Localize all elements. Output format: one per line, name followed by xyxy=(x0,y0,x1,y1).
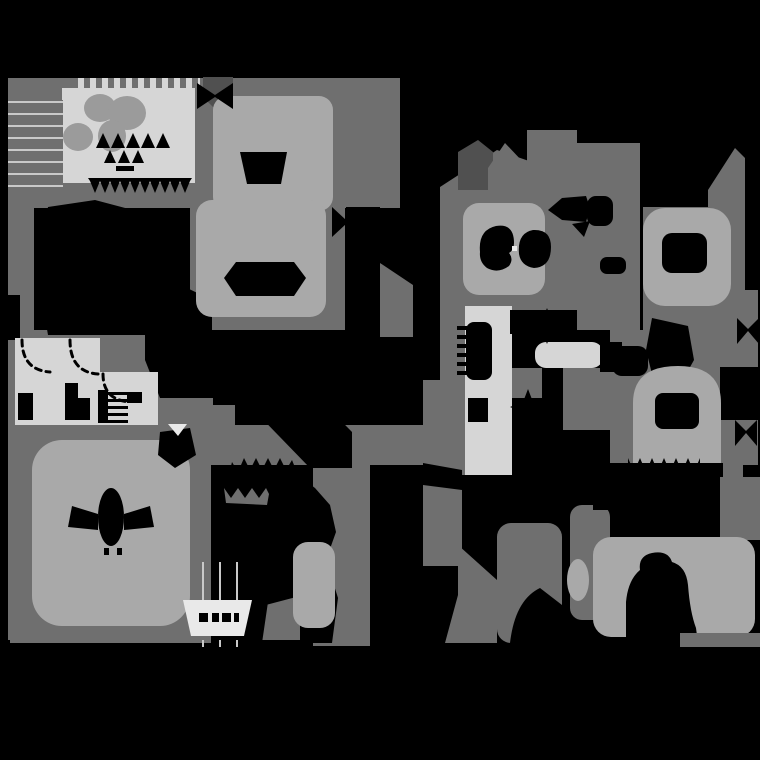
br-corner-patch xyxy=(720,477,760,540)
y-right-patch xyxy=(563,368,610,430)
y-hole-1 xyxy=(466,322,492,380)
right-wedge xyxy=(380,263,413,337)
col-b xyxy=(577,143,640,330)
y-black-bottom xyxy=(516,437,563,471)
arrow-rect xyxy=(587,196,613,226)
comma-left xyxy=(480,226,514,271)
comma-right xyxy=(519,230,551,268)
trap-glyph-3 xyxy=(222,613,231,622)
trap-glyph-1 xyxy=(199,613,208,622)
shape-layer xyxy=(0,77,760,760)
trap-glyph-2 xyxy=(212,613,219,622)
y-tick-4 xyxy=(457,353,467,357)
map-stage xyxy=(0,0,760,760)
stripes-panel xyxy=(8,100,63,195)
ladder-tick-2 xyxy=(108,399,128,402)
white-speck xyxy=(512,246,517,251)
topcenter-right xyxy=(345,78,400,208)
black-band-br xyxy=(593,463,723,510)
small-blob xyxy=(600,257,626,274)
room-black-2 xyxy=(65,383,78,420)
e-blob-bottom xyxy=(196,200,326,317)
trap-glyph-4 xyxy=(234,613,239,622)
map-canvas xyxy=(0,0,760,760)
black-blob-left xyxy=(36,200,212,335)
y-hole-2 xyxy=(468,398,488,422)
table-line-1 xyxy=(202,562,204,600)
y-tick-1 xyxy=(457,326,467,330)
glyph-base xyxy=(116,166,134,171)
bell-black-1 xyxy=(612,346,648,376)
star-1 xyxy=(529,308,565,344)
br-strip xyxy=(680,633,760,647)
bug-body xyxy=(98,488,124,546)
dark-house xyxy=(458,140,493,190)
w-hole xyxy=(662,233,707,273)
ladder-tick-4 xyxy=(108,413,128,416)
bell-hole xyxy=(655,393,699,429)
room-ladder-bar xyxy=(98,390,108,423)
y-left-column xyxy=(440,310,465,475)
table-line-2 xyxy=(219,562,221,600)
room-black-3 xyxy=(78,398,90,420)
table-line-3 xyxy=(236,562,238,600)
hex-hole xyxy=(224,262,306,296)
bug-mark-2 xyxy=(117,548,122,555)
n-blob xyxy=(293,542,335,628)
ladder-tick-1 xyxy=(108,392,128,395)
ladder-tick-3 xyxy=(108,406,128,409)
room-black-1 xyxy=(18,393,33,420)
bell-black-3 xyxy=(720,367,760,420)
y-black-top xyxy=(510,310,525,334)
cc-light-spot xyxy=(567,559,589,601)
y-tick-6 xyxy=(457,371,467,375)
room-black-4 xyxy=(127,392,142,403)
y-tick-5 xyxy=(457,362,467,366)
ladder-tick-5 xyxy=(108,420,128,423)
bottom-black xyxy=(0,647,760,760)
y-tick-3 xyxy=(457,344,467,348)
y-tick-2 xyxy=(457,335,467,339)
edge-notch-black xyxy=(0,295,20,340)
z-banner xyxy=(535,342,603,368)
flower-4 xyxy=(63,123,93,151)
cup-hole xyxy=(240,152,287,184)
bug-mark-1 xyxy=(104,548,109,555)
